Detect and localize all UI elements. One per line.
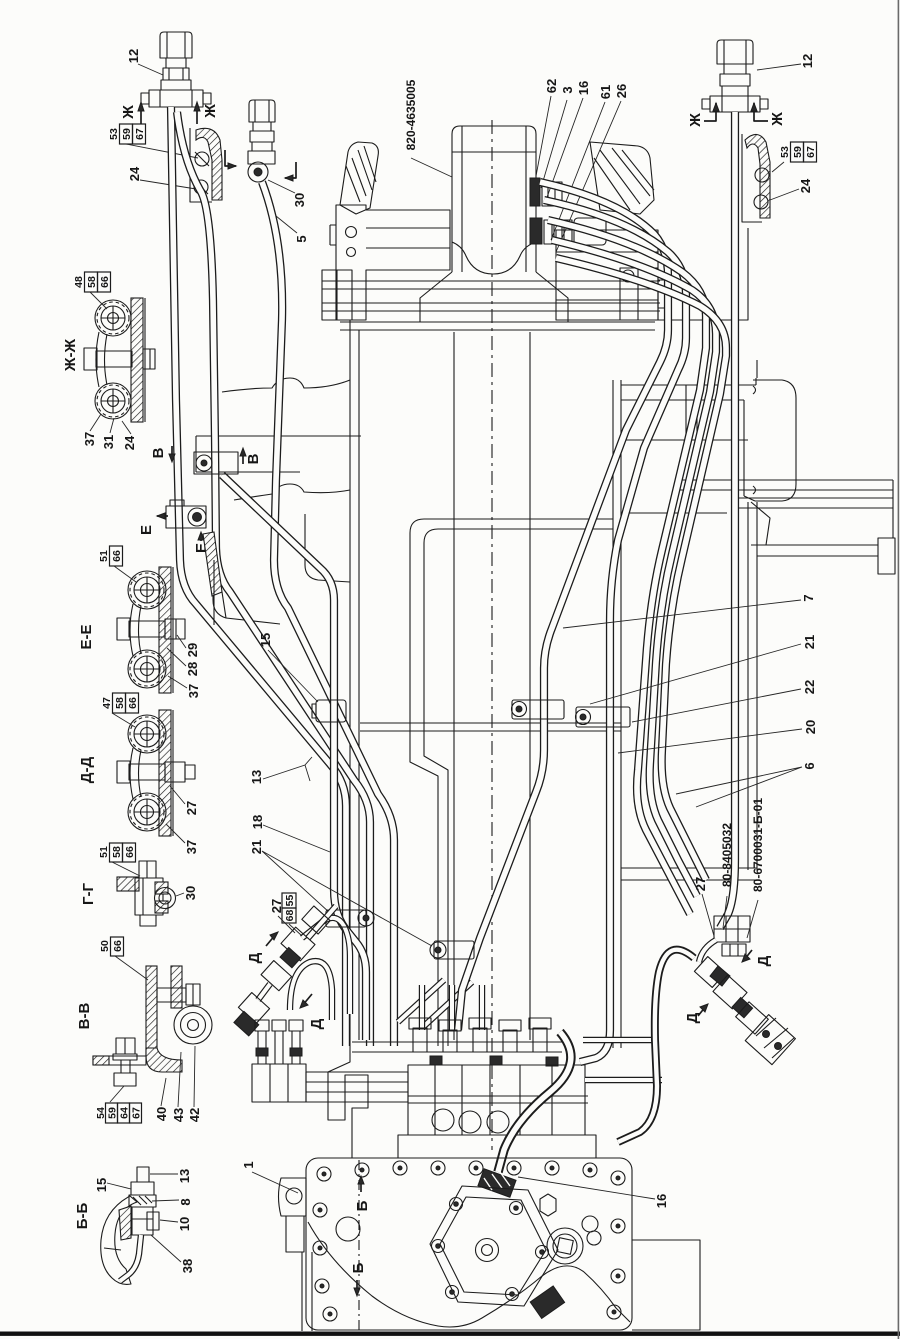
svg-text:53: 53: [779, 146, 791, 158]
svg-text:31: 31: [101, 435, 116, 449]
svg-text:43: 43: [171, 1108, 186, 1122]
svg-text:1: 1: [241, 1161, 256, 1168]
svg-text:21: 21: [802, 635, 817, 649]
svg-text:67: 67: [805, 146, 817, 158]
svg-text:58: 58: [86, 276, 98, 288]
svg-text:Д: Д: [308, 1018, 325, 1029]
svg-text:29: 29: [185, 643, 200, 657]
svg-text:80-6700031-Б-01: 80-6700031-Б-01: [751, 798, 765, 892]
svg-text:13: 13: [249, 770, 264, 784]
svg-text:16: 16: [654, 1194, 669, 1208]
svg-text:66: 66: [112, 940, 124, 952]
svg-text:Д: Д: [246, 952, 263, 963]
svg-text:Ж: Ж: [769, 112, 786, 127]
svg-text:40: 40: [154, 1107, 169, 1121]
svg-text:6: 6: [802, 762, 817, 769]
svg-text:24: 24: [798, 178, 813, 193]
svg-text:Г-Г: Г-Г: [80, 883, 97, 905]
svg-text:53: 53: [108, 128, 120, 140]
svg-text:50: 50: [99, 940, 111, 952]
svg-text:62: 62: [544, 79, 559, 93]
svg-text:42: 42: [187, 1108, 202, 1122]
svg-text:66: 66: [99, 276, 111, 288]
svg-text:18: 18: [250, 815, 265, 829]
svg-text:51: 51: [98, 550, 110, 562]
svg-text:20: 20: [803, 720, 818, 734]
svg-text:24: 24: [122, 435, 137, 450]
svg-text:21: 21: [249, 840, 264, 854]
svg-text:27: 27: [693, 877, 708, 891]
svg-text:820-4635005: 820-4635005: [404, 79, 418, 150]
svg-text:В-В: В-В: [76, 1003, 93, 1030]
svg-text:24: 24: [127, 166, 142, 181]
svg-text:8: 8: [178, 1198, 193, 1205]
svg-text:59: 59: [121, 128, 133, 140]
svg-text:В: В: [245, 453, 262, 464]
svg-text:58: 58: [114, 697, 126, 709]
svg-text:80-8405032: 80-8405032: [720, 823, 734, 887]
svg-text:59: 59: [107, 1107, 119, 1119]
svg-text:37: 37: [82, 432, 97, 446]
svg-text:22: 22: [802, 680, 817, 694]
svg-text:В: В: [150, 447, 167, 458]
svg-text:38: 38: [180, 1259, 195, 1273]
svg-text:15: 15: [258, 633, 273, 647]
svg-text:64: 64: [119, 1107, 131, 1119]
svg-text:Е-Е: Е-Е: [78, 624, 95, 649]
svg-text:28: 28: [185, 662, 200, 676]
svg-text:27: 27: [184, 801, 199, 815]
svg-text:Ж: Ж: [120, 105, 137, 120]
svg-text:5: 5: [294, 235, 309, 242]
svg-text:37: 37: [186, 684, 201, 698]
svg-text:68: 68: [284, 910, 296, 922]
svg-text:10: 10: [177, 1217, 192, 1231]
svg-text:Д-Д: Д-Д: [78, 757, 95, 784]
svg-text:3: 3: [560, 86, 575, 93]
svg-text:Е: Е: [138, 525, 155, 535]
svg-text:30: 30: [292, 193, 307, 207]
svg-text:67: 67: [131, 1107, 143, 1119]
svg-text:26: 26: [614, 84, 629, 98]
svg-text:12: 12: [800, 54, 815, 68]
svg-text:37: 37: [184, 840, 199, 854]
svg-text:48: 48: [73, 276, 85, 288]
svg-text:13: 13: [177, 1169, 192, 1183]
svg-text:47: 47: [101, 697, 113, 709]
svg-text:58: 58: [111, 846, 123, 858]
svg-text:66: 66: [111, 550, 123, 562]
svg-text:30: 30: [183, 886, 198, 900]
svg-text:Ж: Ж: [687, 113, 704, 128]
svg-text:Б-Б: Б-Б: [74, 1203, 91, 1230]
svg-text:12: 12: [126, 49, 141, 63]
svg-text:67: 67: [134, 128, 146, 140]
svg-text:Д: Д: [755, 955, 772, 966]
svg-text:16: 16: [576, 81, 591, 95]
svg-text:51: 51: [98, 846, 110, 858]
svg-text:Д: Д: [684, 1012, 701, 1023]
svg-text:66: 66: [124, 846, 136, 858]
svg-text:Ж: Ж: [202, 104, 219, 119]
svg-text:Ж-Ж: Ж-Ж: [62, 339, 79, 373]
svg-text:61: 61: [598, 85, 613, 99]
svg-text:15: 15: [94, 1178, 109, 1192]
svg-text:7: 7: [801, 594, 816, 601]
svg-text:55: 55: [284, 895, 296, 907]
svg-text:59: 59: [792, 146, 804, 158]
svg-text:Б: Б: [354, 1200, 371, 1211]
svg-text:66: 66: [127, 697, 139, 709]
